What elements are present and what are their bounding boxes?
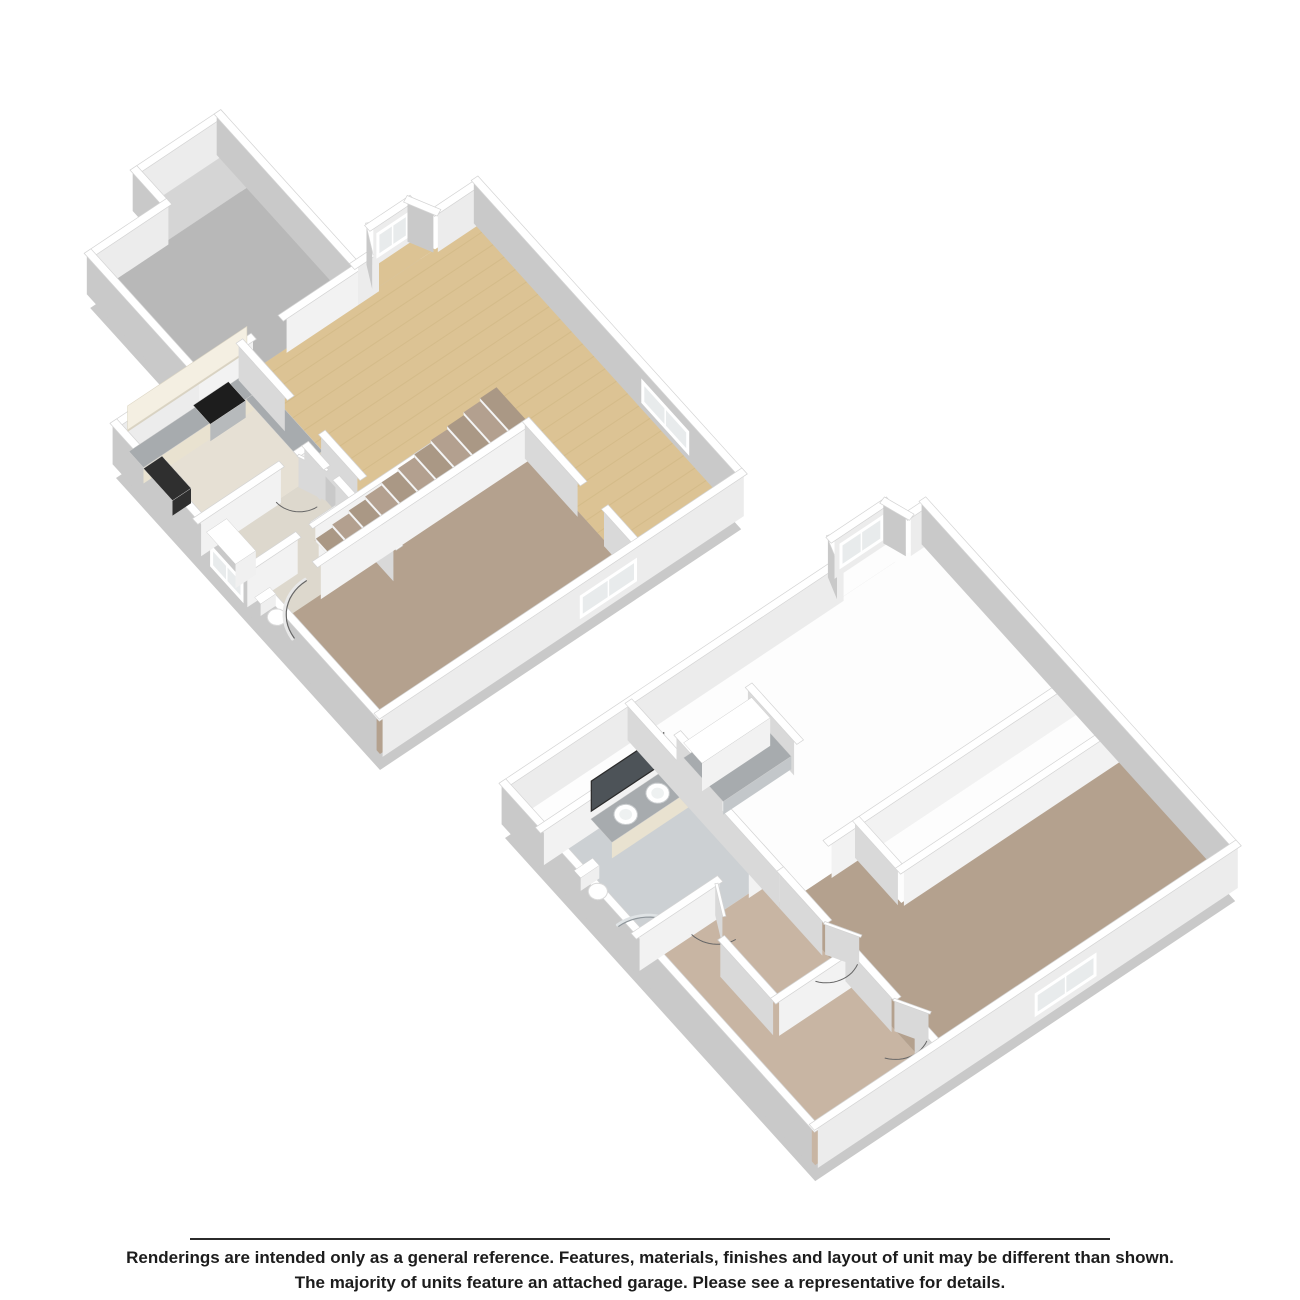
footer-disclaimer: Renderings are intended only as a genera… (0, 1238, 1300, 1295)
disclaimer-line-2: The majority of units feature an attache… (0, 1271, 1300, 1296)
disclaimer-line-1: Renderings are intended only as a genera… (0, 1246, 1300, 1271)
floor-plan-rendering (0, 0, 1300, 1300)
first-floor-plan (84, 110, 747, 770)
footer-divider (190, 1238, 1110, 1240)
